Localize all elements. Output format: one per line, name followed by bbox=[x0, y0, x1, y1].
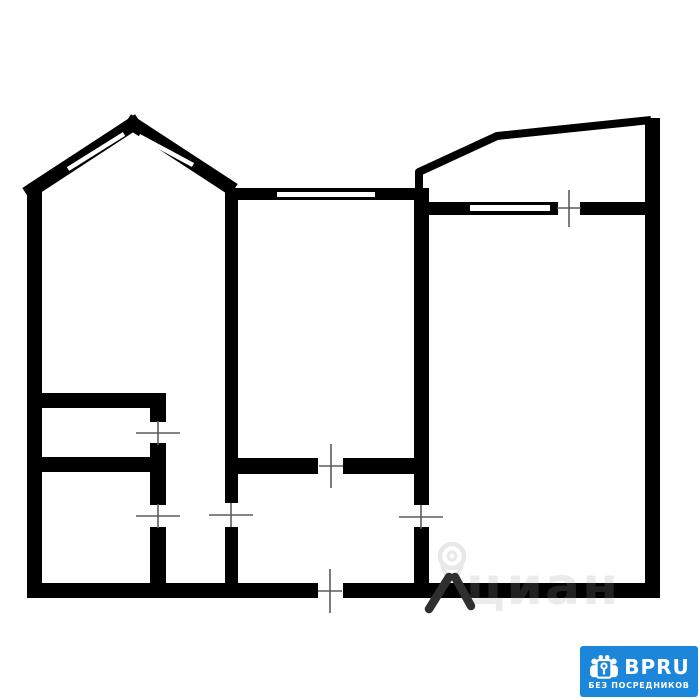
wall bbox=[343, 458, 414, 474]
window bbox=[277, 192, 375, 197]
balcony-outline bbox=[419, 120, 651, 204]
wall bbox=[238, 458, 318, 474]
people-group-key-icon bbox=[588, 654, 620, 680]
bay-window bbox=[32, 124, 228, 190]
window bbox=[68, 134, 124, 169]
wall bbox=[645, 118, 660, 598]
bpru-tagline-text: БЕЗ ПОСРЕДНИКОВ bbox=[588, 682, 689, 690]
door-opening-mark bbox=[318, 569, 342, 613]
floorplan-canvas: циан bbox=[0, 0, 700, 700]
door-opening-mark bbox=[209, 503, 253, 527]
door-opening-mark bbox=[557, 190, 581, 227]
wall bbox=[580, 202, 645, 215]
wall bbox=[150, 527, 166, 583]
door-opening-mark bbox=[319, 444, 343, 488]
walls bbox=[27, 118, 660, 598]
wall bbox=[414, 527, 429, 583]
door-opening-mark bbox=[136, 504, 180, 528]
watermark-text-overlay: циан bbox=[466, 557, 620, 617]
bpru-brand-text: BPRU bbox=[624, 657, 690, 677]
wall bbox=[27, 186, 42, 598]
wall bbox=[27, 583, 318, 598]
door-opening-mark bbox=[136, 421, 180, 445]
door-opening-marks bbox=[136, 190, 581, 613]
floorplan-drawing: циан bbox=[0, 0, 700, 700]
wall bbox=[414, 188, 429, 505]
wall bbox=[150, 443, 166, 505]
wall bbox=[225, 527, 238, 583]
door-opening-mark bbox=[399, 505, 443, 529]
wall bbox=[42, 457, 150, 472]
bpru-badge: BPRU БЕЗ ПОСРЕДНИКОВ bbox=[580, 646, 698, 697]
wall bbox=[42, 393, 166, 408]
wall bbox=[225, 188, 238, 503]
window bbox=[470, 205, 550, 211]
